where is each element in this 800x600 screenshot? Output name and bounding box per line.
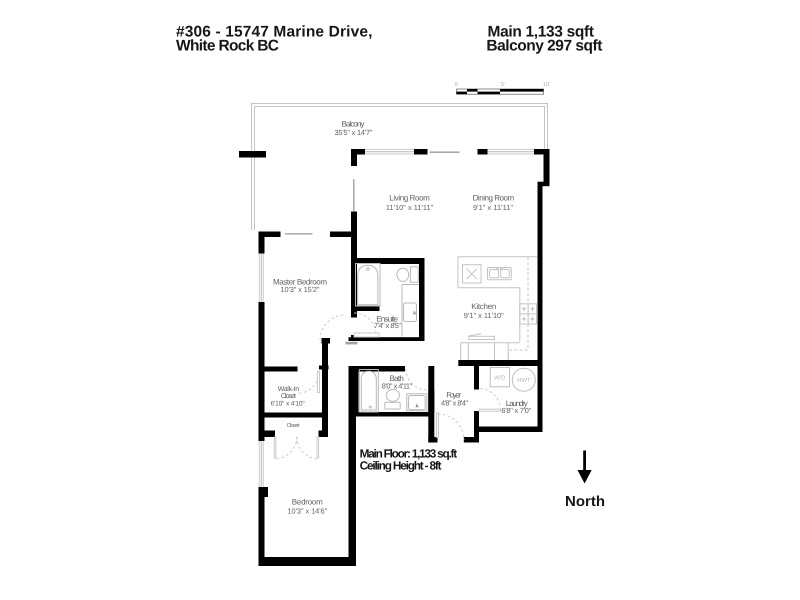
svg-text:Balcony 297 sqft: Balcony 297 sqft <box>486 38 602 55</box>
svg-text:11'10" x 11'11": 11'10" x 11'11" <box>386 203 434 212</box>
svg-text:HWT: HWT <box>517 378 531 384</box>
svg-text:35'5" x 14'7": 35'5" x 14'7" <box>335 128 373 137</box>
svg-text:Living Room: Living Room <box>389 193 430 202</box>
svg-text:5': 5' <box>501 82 505 88</box>
svg-text:Dining Room: Dining Room <box>473 193 515 202</box>
svg-text:W/D: W/D <box>494 374 505 381</box>
svg-text:North: North <box>565 494 605 510</box>
svg-text:10'3" x 14'6": 10'3" x 14'6" <box>288 506 328 515</box>
svg-text:9'1" x 11'10": 9'1" x 11'10" <box>464 311 504 320</box>
svg-text:Walk-In: Walk-In <box>278 385 299 393</box>
svg-text:0: 0 <box>455 82 458 88</box>
svg-text:8'0" x 4'11": 8'0" x 4'11" <box>382 382 413 391</box>
svg-text:7'4" x 8'5": 7'4" x 8'5" <box>374 321 401 330</box>
svg-text:White Rock BC: White Rock BC <box>176 38 279 55</box>
svg-text:6'8" x 7'0": 6'8" x 7'0" <box>501 406 531 415</box>
svg-text:Ceiling Height - 8ft: Ceiling Height - 8ft <box>360 458 442 472</box>
svg-text:Closet: Closet <box>287 422 300 429</box>
svg-text:9'1" x 11'11": 9'1" x 11'11" <box>473 203 513 212</box>
svg-text:6'10" x 4'10": 6'10" x 4'10" <box>271 401 306 408</box>
svg-text:Closet: Closet <box>281 392 296 400</box>
svg-text:Kitchen: Kitchen <box>471 302 496 311</box>
svg-text:10'3" x 15'2": 10'3" x 15'2" <box>281 285 320 294</box>
svg-text:4'8" x 8'4": 4'8" x 8'4" <box>441 399 468 408</box>
svg-text:Bedroom: Bedroom <box>292 497 323 506</box>
svg-text:10': 10' <box>543 82 550 88</box>
